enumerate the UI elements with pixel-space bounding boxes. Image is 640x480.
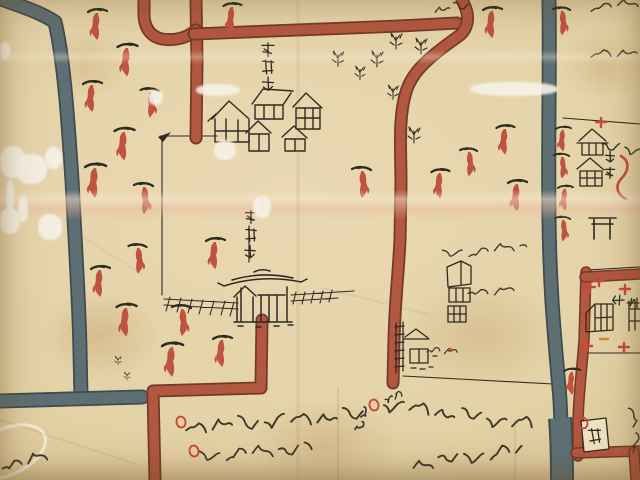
grass-icon xyxy=(124,372,130,380)
tree-icon xyxy=(85,164,106,198)
tree-icon xyxy=(483,7,502,38)
kanji-char-mark xyxy=(262,43,274,57)
hachiman-house-2 xyxy=(577,158,604,186)
historical-map-canvas xyxy=(0,0,640,480)
grass-icon xyxy=(415,38,427,54)
grass-icon xyxy=(390,33,402,49)
grass-icon xyxy=(371,51,383,67)
tree-icon xyxy=(134,183,153,214)
kanji-char-mark xyxy=(246,211,257,224)
village-cartouche-oval xyxy=(0,414,54,480)
inscription-south-right-small xyxy=(385,392,402,403)
kanji-char-mark xyxy=(613,295,624,305)
seal-box xyxy=(581,418,609,452)
hachiman-shrine-buildings xyxy=(577,129,627,239)
tree-icon xyxy=(558,186,573,211)
red-marker-symbols xyxy=(262,118,630,352)
label-residence-quarter xyxy=(262,43,274,90)
tree-icon xyxy=(554,154,569,179)
tree-icon xyxy=(91,266,110,297)
grass-icon xyxy=(408,127,420,143)
tree-icon xyxy=(162,343,183,377)
grass-icon xyxy=(355,66,365,80)
kanji-char-mark xyxy=(262,60,273,74)
grass-icon xyxy=(115,356,122,365)
watchtower-buildings xyxy=(395,261,471,373)
inscription-south-line-3 xyxy=(414,446,522,468)
red-tick-icon xyxy=(620,285,630,294)
gray-waterway-roads xyxy=(0,0,562,480)
kanji-char-mark xyxy=(245,246,255,258)
tree-icon xyxy=(460,148,477,176)
tree-icon xyxy=(141,88,159,117)
south-east-boundary xyxy=(403,376,553,384)
inscription-top-right-1 xyxy=(591,0,638,11)
red-circle-icon xyxy=(188,445,199,458)
red-tick-icon xyxy=(596,118,606,127)
grass-icon xyxy=(332,51,343,66)
inscription-tower-note-1 xyxy=(443,244,527,257)
kanji-char-mark xyxy=(606,152,615,162)
inscription-tower-note-2 xyxy=(468,288,514,295)
small-gate xyxy=(404,329,437,369)
shrine-roof xyxy=(218,270,307,286)
grass-icon xyxy=(388,85,399,99)
red-circle-icon xyxy=(368,399,379,412)
tower-top xyxy=(447,261,471,287)
tower-base xyxy=(448,306,466,322)
tower-mid xyxy=(449,288,470,302)
red-circle-icon xyxy=(175,416,186,429)
red-circle-markers xyxy=(175,399,588,458)
torii-icon xyxy=(589,218,616,239)
tree-icon xyxy=(213,336,232,367)
tree-icon xyxy=(83,81,102,112)
hachiman-house-1 xyxy=(577,129,608,155)
inscription-south-right-line xyxy=(384,402,538,428)
label-shrine-gate-name xyxy=(245,211,257,258)
inscription-top-right-2 xyxy=(591,50,637,57)
tree-icon xyxy=(206,238,225,269)
kanji-char-mark xyxy=(262,77,273,90)
tree-icon xyxy=(117,304,137,337)
shrine-fence-right xyxy=(291,290,354,304)
inscription-south-line-1 xyxy=(186,408,369,432)
shrine-annex xyxy=(234,286,256,322)
tree-icon xyxy=(508,180,527,211)
label-hachiman-shrine xyxy=(605,152,614,179)
kanji-char-mark xyxy=(246,229,256,242)
tree-icon xyxy=(496,125,514,154)
tree-icon xyxy=(118,44,138,77)
red-tick-icon xyxy=(619,343,629,352)
banner-flag-icon xyxy=(158,132,171,142)
tree-icon xyxy=(431,169,449,198)
tree-icon xyxy=(88,9,107,40)
tree-icon xyxy=(172,305,191,336)
inscription-south-line-2 xyxy=(200,443,312,461)
inscription-gate-note xyxy=(427,348,457,354)
residence-buildings xyxy=(208,89,322,151)
red-main-roads xyxy=(144,0,468,480)
map-artwork xyxy=(0,0,640,480)
inscription-hachiman-note xyxy=(602,144,640,155)
red-path-squiggle xyxy=(617,156,627,199)
tree-icon xyxy=(556,127,571,152)
tree-icon xyxy=(555,217,570,242)
tree-icon xyxy=(115,128,135,161)
tree-icon xyxy=(352,167,371,198)
shrine-gate-complex xyxy=(164,226,354,327)
tree-icon xyxy=(129,244,147,273)
tree-symbols xyxy=(83,3,581,395)
kanji-char-mark xyxy=(605,168,614,179)
